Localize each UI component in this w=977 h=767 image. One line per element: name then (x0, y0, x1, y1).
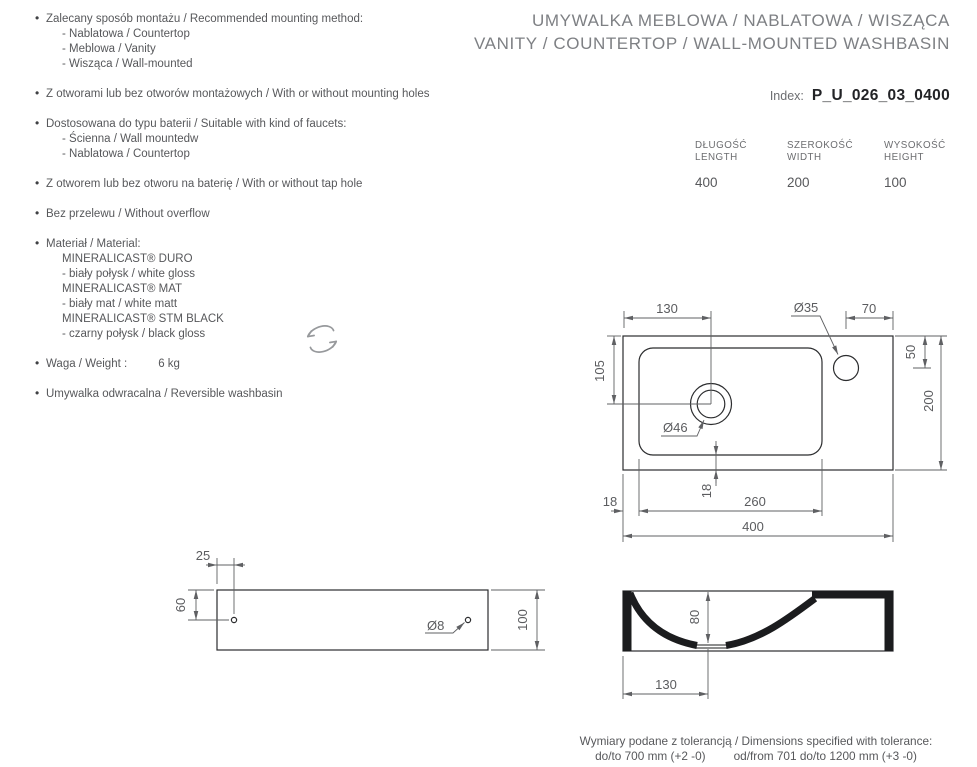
tolerance-line1: Wymiary podane z tolerancją / Dimensions… (560, 734, 952, 749)
tolerance-small: do/to 700 mm (+2 -0) (595, 749, 705, 763)
top-view-dim-260-label: 260 (744, 494, 766, 509)
section-dim-130-label: 130 (655, 677, 677, 692)
technical-drawings: 130 Ø35 70 105 50 200 Ø46 (0, 0, 977, 767)
section-dim-80-label: 80 (687, 610, 702, 624)
rear-view-outline (217, 590, 488, 650)
datasheet-page: Zalecany sposób montażu / Recommended mo… (0, 0, 977, 767)
tap-diameter-leader (791, 316, 838, 355)
section-view-drawing: 80 130 (623, 591, 893, 699)
section-outline (623, 591, 893, 651)
top-view-dim-105-label: 105 (592, 360, 607, 382)
rear-view-drawing: 25 60 Ø8 100 (173, 548, 545, 650)
top-view-dim-50-label: 50 (903, 345, 918, 359)
top-view-outline (623, 336, 893, 470)
top-view-dim-18-bottom-label: 18 (699, 484, 714, 498)
tolerance-line2: do/to 700 mm (+2 -0)od/from 701 do/to 12… (560, 749, 952, 764)
reversible-arrows-icon (304, 322, 340, 356)
drain-diameter-label: Ø46 (663, 420, 688, 435)
section-bowl-right-curve (726, 599, 815, 646)
rear-view-dim-100-label: 100 (515, 609, 530, 631)
mounting-hole-right (465, 617, 470, 622)
mounting-hole-diameter-label: Ø8 (427, 618, 444, 633)
mounting-hole-left (231, 617, 236, 622)
tolerance-large: od/from 701 do/to 1200 mm (+3 -0) (734, 749, 917, 763)
top-view-drawing: 130 Ø35 70 105 50 200 Ø46 (592, 300, 947, 542)
tap-hole-circle (834, 356, 859, 381)
tap-diameter-label: Ø35 (794, 300, 819, 315)
top-view-dim-200-label: 200 (921, 390, 936, 412)
rear-view-dim-25-label: 25 (196, 548, 210, 563)
top-view-dim-130-label: 130 (656, 301, 678, 316)
basin-outline (639, 348, 822, 455)
section-deck (812, 591, 893, 599)
tolerance-note: Wymiary podane z tolerancją / Dimensions… (560, 734, 952, 764)
top-view-dim-70-label: 70 (862, 301, 876, 316)
rear-view-dim-60-label: 60 (173, 598, 188, 612)
section-right-wall (885, 591, 894, 651)
top-view-dim-18-left-label: 18 (603, 494, 617, 509)
top-view-dim-400-label: 400 (742, 519, 764, 534)
